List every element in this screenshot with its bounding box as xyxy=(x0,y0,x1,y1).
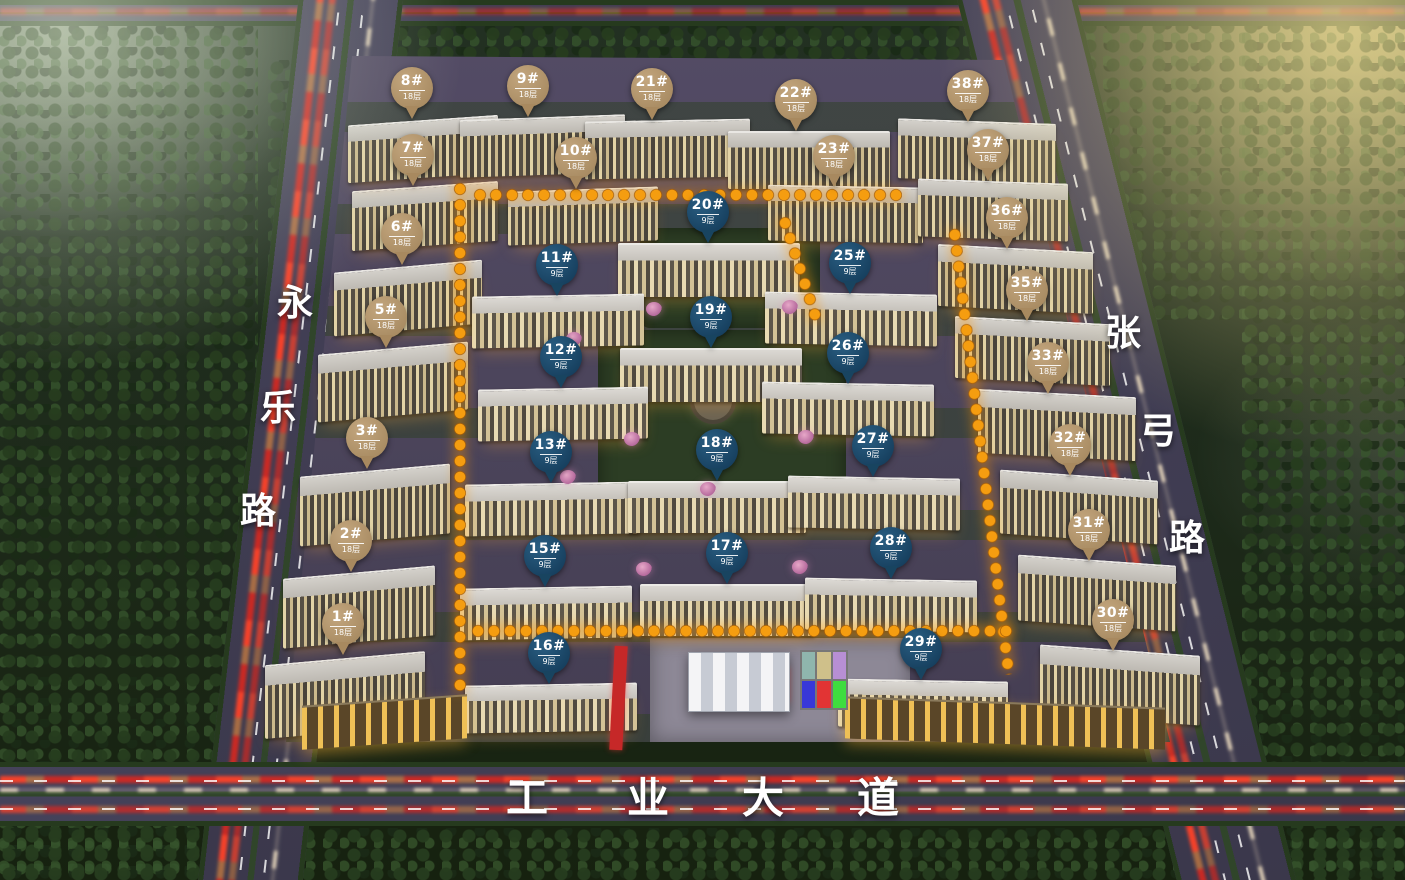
marker-bubble: 8#18层 xyxy=(391,67,433,109)
marker-floors: 18层 xyxy=(330,626,356,638)
building-marker-23[interactable]: 23#18层 xyxy=(813,135,855,187)
lane-dash xyxy=(0,808,1405,810)
marker-number: 7# xyxy=(402,141,424,156)
marker-floors: 9层 xyxy=(910,651,931,663)
marker-number: 18# xyxy=(701,436,734,451)
marker-pointer xyxy=(866,464,880,477)
marker-floors: 18层 xyxy=(354,440,380,452)
kindergarten-building xyxy=(688,652,790,712)
marker-bubble: 17#9层 xyxy=(706,532,748,574)
road-label-bottom: 道 xyxy=(857,765,899,826)
marker-bubble: 23#18层 xyxy=(813,135,855,177)
building-marker-38[interactable]: 38#18层 xyxy=(947,70,989,122)
marker-bubble: 11#9层 xyxy=(536,244,578,286)
roof-panel xyxy=(802,652,815,679)
marker-number: 20# xyxy=(692,198,725,213)
building-marker-5[interactable]: 5#18层 xyxy=(365,296,407,348)
marker-number: 29# xyxy=(905,635,938,650)
marker-bubble: 26#9层 xyxy=(827,332,869,374)
marker-number: 32# xyxy=(1054,431,1087,446)
building-marker-15[interactable]: 15#9层 xyxy=(524,535,566,587)
aerial-site-plan: 永乐路张弓路工业大道1#18层2#18层3#18层5#18层6#18层7#18层… xyxy=(0,0,1405,880)
road-label-left: 永 xyxy=(277,274,313,326)
marker-floors: 9层 xyxy=(862,448,883,460)
building-marker-17[interactable]: 17#9层 xyxy=(706,532,748,584)
marker-number: 15# xyxy=(529,542,562,557)
marker-bubble: 25#9层 xyxy=(829,242,871,284)
marker-number: 31# xyxy=(1073,516,1106,531)
marker-bubble: 35#18层 xyxy=(1006,269,1048,311)
building xyxy=(465,481,640,536)
marker-floors: 18层 xyxy=(338,543,364,555)
marker-pointer xyxy=(1082,548,1096,561)
marker-number: 19# xyxy=(695,303,728,318)
marker-number: 27# xyxy=(857,432,890,447)
building-marker-3[interactable]: 3#18层 xyxy=(346,417,388,469)
building-marker-26[interactable]: 26#9层 xyxy=(827,332,869,384)
building-marker-18[interactable]: 18#9层 xyxy=(696,429,738,481)
marker-number: 13# xyxy=(535,438,568,453)
marker-bubble: 12#9层 xyxy=(540,336,582,378)
marker-floors: 18层 xyxy=(994,220,1020,232)
marker-pointer xyxy=(1000,236,1014,249)
building xyxy=(728,131,890,189)
marker-bubble: 20#9层 xyxy=(687,191,729,233)
building-marker-20[interactable]: 20#9层 xyxy=(687,191,729,243)
pink-blossom-tree xyxy=(782,300,798,314)
road-gongye xyxy=(0,762,1405,826)
headlight-trail xyxy=(0,788,1405,792)
marker-number: 33# xyxy=(1032,349,1065,364)
marker-number: 5# xyxy=(375,303,397,318)
marker-bubble: 5#18层 xyxy=(365,296,407,338)
marker-bubble: 3#18层 xyxy=(346,417,388,459)
road-label-bottom: 业 xyxy=(627,765,669,826)
marker-pointer xyxy=(395,252,409,265)
road-label-left: 乐 xyxy=(260,379,296,431)
marker-floors: 9层 xyxy=(837,355,858,367)
building xyxy=(618,243,800,297)
marker-bubble: 31#18层 xyxy=(1068,509,1110,551)
marker-floors: 18层 xyxy=(1035,365,1061,377)
building-marker-29[interactable]: 29#9层 xyxy=(900,628,942,680)
building-marker-31[interactable]: 31#18层 xyxy=(1068,509,1110,561)
building-marker-25[interactable]: 25#9层 xyxy=(829,242,871,294)
marker-number: 9# xyxy=(517,72,539,87)
marker-floors: 9层 xyxy=(534,558,555,570)
marker-floors: 18层 xyxy=(389,236,415,248)
marker-pointer xyxy=(645,107,659,120)
marker-number: 22# xyxy=(780,86,813,101)
marker-pointer xyxy=(336,642,350,655)
marker-pointer xyxy=(1063,463,1077,476)
marker-number: 30# xyxy=(1097,606,1130,621)
marker-number: 25# xyxy=(834,249,867,264)
building-marker-2[interactable]: 2#18层 xyxy=(330,520,372,572)
kindergarten-color-roof xyxy=(800,650,848,710)
marker-bubble: 28#9层 xyxy=(870,527,912,569)
marker-number: 38# xyxy=(952,77,985,92)
building xyxy=(318,341,468,422)
marker-number: 37# xyxy=(972,136,1005,151)
marker-bubble: 21#18层 xyxy=(631,68,673,110)
marker-number: 12# xyxy=(545,343,578,358)
marker-bubble: 19#9层 xyxy=(690,296,732,338)
building xyxy=(762,381,934,436)
marker-pointer xyxy=(789,118,803,131)
marker-number: 36# xyxy=(991,204,1024,219)
building xyxy=(300,463,450,546)
pink-blossom-tree xyxy=(646,302,662,316)
marker-bubble: 10#18层 xyxy=(555,137,597,179)
building xyxy=(585,119,750,180)
orange-tree-row xyxy=(452,182,466,692)
marker-floors: 9层 xyxy=(880,550,901,562)
marker-pointer xyxy=(701,230,715,243)
building-marker-6[interactable]: 6#18层 xyxy=(381,213,423,265)
marker-bubble: 6#18层 xyxy=(381,213,423,255)
marker-bubble: 15#9层 xyxy=(524,535,566,577)
marker-pointer xyxy=(704,335,718,348)
marker-pointer xyxy=(544,470,558,483)
marker-floors: 18层 xyxy=(373,319,399,331)
lane-dash xyxy=(0,780,1405,782)
marker-bubble: 27#9层 xyxy=(852,425,894,467)
marker-number: 11# xyxy=(541,251,574,266)
roof-panel xyxy=(817,652,830,679)
marker-floors: 18层 xyxy=(563,160,589,172)
marker-pointer xyxy=(1041,381,1055,394)
building-marker-33[interactable]: 33#18层 xyxy=(1027,342,1069,394)
marker-floors: 9层 xyxy=(839,265,860,277)
building-marker-12[interactable]: 12#9层 xyxy=(540,336,582,388)
marker-pointer xyxy=(538,574,552,587)
marker-pointer xyxy=(554,375,568,388)
marker-bubble: 22#18层 xyxy=(775,79,817,121)
marker-bubble: 32#18层 xyxy=(1049,424,1091,466)
building-marker-8[interactable]: 8#18层 xyxy=(391,67,433,119)
marker-floors: 18层 xyxy=(975,152,1001,164)
marker-pointer xyxy=(344,559,358,572)
marker-number: 16# xyxy=(533,639,566,654)
marker-bubble: 13#9层 xyxy=(530,431,572,473)
building-marker-22[interactable]: 22#18层 xyxy=(775,79,817,131)
trees-right-band xyxy=(1242,0,1405,880)
road-label-left: 路 xyxy=(240,482,276,534)
roof-panel xyxy=(833,652,846,679)
marker-floors: 18层 xyxy=(400,157,426,169)
marker-pointer xyxy=(841,371,855,384)
building-marker-37[interactable]: 37#18层 xyxy=(967,129,1009,181)
road-label-right: 张 xyxy=(1105,304,1141,356)
marker-number: 8# xyxy=(401,74,423,89)
marker-number: 6# xyxy=(391,220,413,235)
building-marker-21[interactable]: 21#18层 xyxy=(631,68,673,120)
building-marker-7[interactable]: 7#18层 xyxy=(392,134,434,186)
building-marker-28[interactable]: 28#9层 xyxy=(870,527,912,579)
marker-floors: 9层 xyxy=(550,359,571,371)
marker-bubble: 30#18层 xyxy=(1092,599,1134,641)
roof-panel xyxy=(833,681,846,708)
marker-bubble: 16#9层 xyxy=(528,632,570,674)
marker-floors: 18层 xyxy=(821,158,847,170)
marker-pointer xyxy=(1020,308,1034,321)
marker-number: 3# xyxy=(356,424,378,439)
building-marker-36[interactable]: 36#18层 xyxy=(986,197,1028,249)
marker-pointer xyxy=(521,104,535,117)
marker-floors: 9层 xyxy=(697,214,718,226)
building-marker-1[interactable]: 1#18层 xyxy=(322,603,364,655)
marker-bubble: 37#18层 xyxy=(967,129,1009,171)
marker-number: 35# xyxy=(1011,276,1044,291)
marker-pointer xyxy=(981,168,995,181)
marker-floors: 9层 xyxy=(700,319,721,331)
marker-pointer xyxy=(827,174,841,187)
marker-pointer xyxy=(961,109,975,122)
road-label-right: 弓 xyxy=(1140,402,1176,454)
marker-floors: 9层 xyxy=(538,655,559,667)
building-marker-19[interactable]: 19#9层 xyxy=(690,296,732,348)
marker-number: 17# xyxy=(711,539,744,554)
building xyxy=(628,481,806,533)
marker-bubble: 9#18层 xyxy=(507,65,549,107)
building-marker-9[interactable]: 9#18层 xyxy=(507,65,549,117)
building-marker-27[interactable]: 27#9层 xyxy=(852,425,894,477)
marker-floors: 18层 xyxy=(1076,532,1102,544)
marker-pointer xyxy=(884,566,898,579)
roof-panel xyxy=(802,681,815,708)
pink-blossom-tree xyxy=(636,562,652,576)
marker-pointer xyxy=(379,335,393,348)
marker-pointer xyxy=(914,667,928,680)
marker-floors: 18层 xyxy=(515,88,541,100)
roof-panel xyxy=(817,681,830,708)
marker-bubble: 36#18层 xyxy=(986,197,1028,239)
marker-number: 23# xyxy=(818,142,851,157)
marker-pointer xyxy=(569,176,583,189)
marker-pointer xyxy=(720,571,734,584)
marker-floors: 9层 xyxy=(546,267,567,279)
marker-number: 21# xyxy=(636,75,669,90)
marker-floors: 18层 xyxy=(639,91,665,103)
road-label-bottom: 工 xyxy=(506,765,548,826)
marker-number: 28# xyxy=(875,534,908,549)
marker-pointer xyxy=(710,468,724,481)
building-marker-13[interactable]: 13#9层 xyxy=(530,431,572,483)
marker-pointer xyxy=(542,671,556,684)
road-top xyxy=(0,0,1405,26)
marker-floors: 9层 xyxy=(716,555,737,567)
marker-floors: 18层 xyxy=(1014,292,1040,304)
marker-pointer xyxy=(550,283,564,296)
marker-number: 1# xyxy=(332,610,354,625)
traffic-light-trail xyxy=(0,8,1405,15)
building-marker-35[interactable]: 35#18层 xyxy=(1006,269,1048,321)
building-marker-11[interactable]: 11#9层 xyxy=(536,244,578,296)
marker-bubble: 29#9层 xyxy=(900,628,942,670)
marker-pointer xyxy=(843,281,857,294)
marker-number: 10# xyxy=(560,144,593,159)
building-marker-32[interactable]: 32#18层 xyxy=(1049,424,1091,476)
pink-blossom-tree xyxy=(624,432,640,446)
building-marker-10[interactable]: 10#18层 xyxy=(555,137,597,189)
marker-bubble: 18#9层 xyxy=(696,429,738,471)
marker-floors: 18层 xyxy=(1100,622,1126,634)
marker-bubble: 38#18层 xyxy=(947,70,989,112)
building-marker-16[interactable]: 16#9层 xyxy=(528,632,570,684)
pink-blossom-tree xyxy=(798,430,814,444)
marker-floors: 9层 xyxy=(540,454,561,466)
marker-bubble: 33#18层 xyxy=(1027,342,1069,384)
marker-number: 26# xyxy=(832,339,865,354)
marker-bubble: 7#18层 xyxy=(392,134,434,176)
marker-bubble: 2#18层 xyxy=(330,520,372,562)
marker-pointer xyxy=(1106,638,1120,651)
building xyxy=(788,475,960,530)
pink-blossom-tree xyxy=(700,482,716,496)
road-label-right: 路 xyxy=(1169,509,1205,561)
building-marker-30[interactable]: 30#18层 xyxy=(1092,599,1134,651)
marker-floors: 18层 xyxy=(1057,447,1083,459)
road-label-bottom: 大 xyxy=(742,765,784,826)
marker-pointer xyxy=(360,456,374,469)
marker-floors: 18层 xyxy=(955,93,981,105)
marker-pointer xyxy=(405,106,419,119)
marker-pointer xyxy=(406,173,420,186)
pink-blossom-tree xyxy=(792,560,808,574)
marker-bubble: 1#18层 xyxy=(322,603,364,645)
marker-floors: 9层 xyxy=(706,452,727,464)
marker-floors: 18层 xyxy=(399,90,425,102)
marker-floors: 18层 xyxy=(783,102,809,114)
marker-number: 2# xyxy=(340,527,362,542)
